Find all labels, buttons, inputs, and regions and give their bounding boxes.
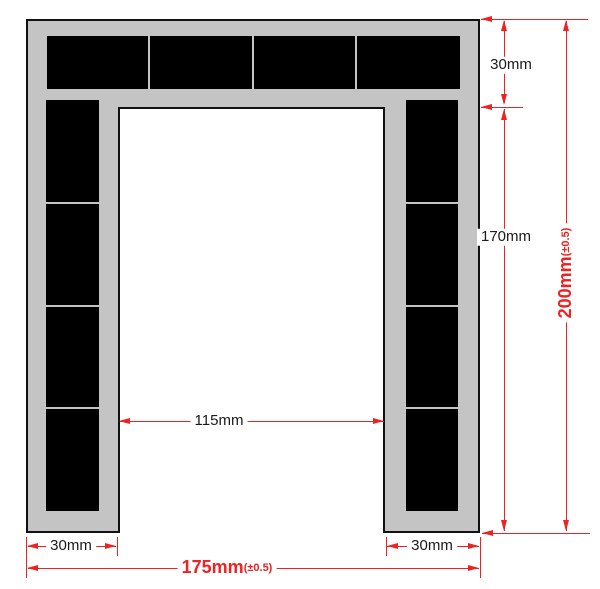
arrow-left-icon xyxy=(27,565,38,571)
extension-line-top xyxy=(481,19,588,20)
arrow-up-icon xyxy=(563,20,569,31)
panel-right-1 xyxy=(406,100,458,202)
panel-top-2 xyxy=(150,36,252,89)
dimension-line-inner-width xyxy=(120,421,384,422)
panel-left-2 xyxy=(46,204,99,305)
extension-line-bottom-right xyxy=(482,533,590,534)
panel-left-1 xyxy=(46,100,99,202)
arrow-right-icon xyxy=(105,543,116,549)
panel-right-3 xyxy=(406,307,458,407)
dim-label-total-height-tolerance: (±0.5) xyxy=(560,228,572,257)
panel-top-1 xyxy=(47,36,148,89)
arrow-right-icon xyxy=(468,543,479,549)
arrow-left-icon xyxy=(481,16,492,22)
arrow-right-icon xyxy=(468,565,479,571)
panel-left-4 xyxy=(46,409,99,511)
dim-label-total-height: 200mm(±0.5) xyxy=(556,224,576,323)
arrow-left-icon xyxy=(481,104,492,110)
frame-inner-cutout xyxy=(118,107,385,533)
dim-label-right-leg: 30mm xyxy=(407,538,457,555)
dim-label-inner-width: 115mm xyxy=(191,413,248,430)
panel-left-3 xyxy=(46,307,99,407)
dim-label-left-leg: 30mm xyxy=(46,538,96,555)
dim-label-top-thickness: 30mm xyxy=(486,57,536,74)
arrow-down-icon xyxy=(501,94,507,105)
dim-label-total-height-value: 200mm xyxy=(555,256,575,318)
arrow-down-icon xyxy=(563,520,569,531)
panel-top-3 xyxy=(254,36,355,89)
panel-right-2 xyxy=(406,204,458,305)
dim-label-total-width: 175mm(±0.5) xyxy=(178,558,277,578)
arrow-left-icon xyxy=(482,530,493,536)
arrow-left-icon xyxy=(119,418,130,424)
arrow-left-icon xyxy=(27,543,38,549)
arrow-up-icon xyxy=(501,20,507,31)
arrow-down-icon xyxy=(501,520,507,531)
extension-line-outer-right xyxy=(480,537,481,578)
arrow-up-icon xyxy=(501,109,507,120)
dim-label-right-height: 170mm xyxy=(477,229,535,246)
dimension-line-right-height xyxy=(504,109,505,531)
panel-top-4 xyxy=(357,36,460,89)
arrow-right-icon xyxy=(373,418,384,424)
panel-right-4 xyxy=(406,409,458,511)
extension-line-inner-left xyxy=(117,537,118,556)
technical-drawing: 30mm 170mm 200mm(±0.5) 115mm 30mm 30mm 1… xyxy=(0,0,600,589)
arrow-left-icon xyxy=(387,543,398,549)
dim-label-total-width-value: 175mm xyxy=(182,557,244,577)
dim-label-total-width-tolerance: (±0.5) xyxy=(244,562,273,574)
